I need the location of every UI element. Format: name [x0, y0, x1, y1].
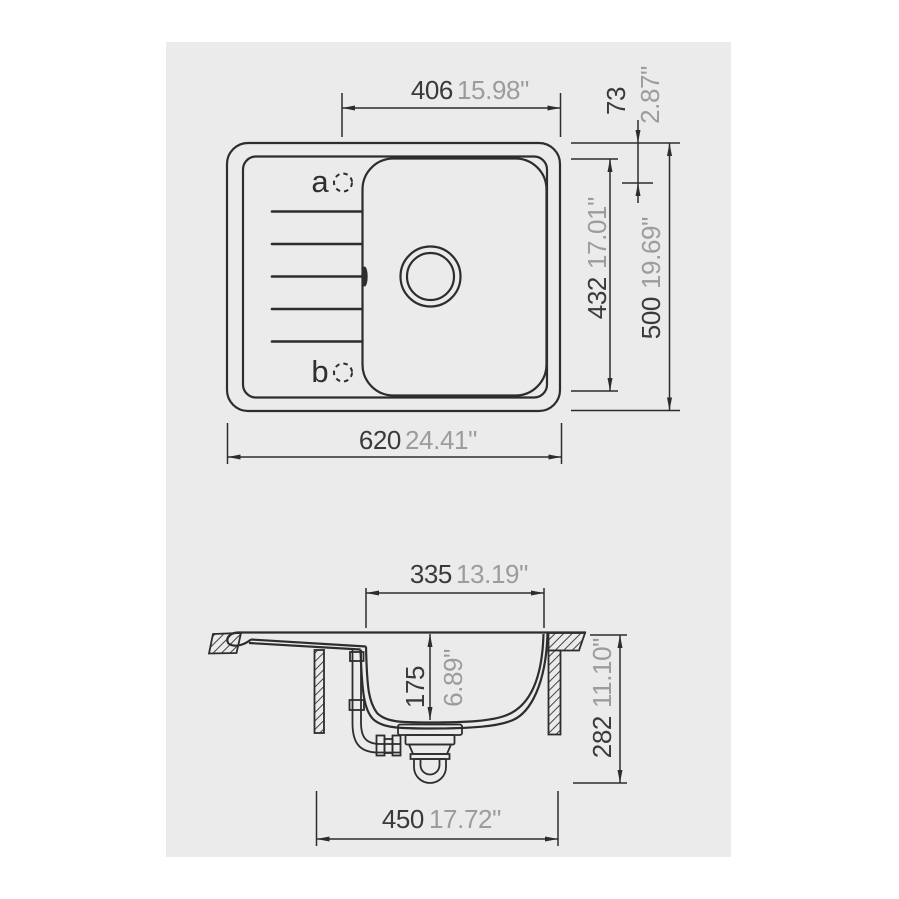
dim-overall-height-inch: 11.10"	[587, 638, 617, 708]
dim-overall-width-metric: 620	[359, 425, 401, 455]
dim-bowl-width-metric: 406	[411, 75, 453, 105]
cabinet-wall-hatch-right	[549, 651, 561, 735]
dim-inner-length-inch: 17.01"	[582, 197, 612, 269]
tap-hole-b-label: b	[311, 354, 328, 389]
drawing-page: a b 406 15.98" 73 2.87"	[0, 0, 899, 899]
dim-bowl-width-inch: 15.98"	[457, 75, 529, 105]
counter-hatch-right	[549, 633, 586, 651]
dim-overall-length-metric: 500	[636, 297, 666, 339]
dim-top-offset-inch: 2.87"	[635, 66, 665, 124]
overflow-notch	[361, 267, 367, 287]
dim-bowl-depth-metric: 175	[400, 666, 430, 708]
cabinet-wall-hatch-left	[315, 650, 325, 733]
dim-overall-height-metric: 282	[587, 716, 617, 758]
tap-hole-a-label: a	[311, 164, 329, 199]
dim-overall-length-inch: 19.69"	[636, 217, 666, 289]
sink-dimension-drawing: a b 406 15.98" 73 2.87"	[0, 0, 899, 899]
dim-cabinet-width-metric: 450	[382, 804, 424, 834]
dim-bowl-depth-inch: 6.89"	[438, 649, 468, 707]
dim-overall-width-inch: 24.41"	[405, 425, 477, 455]
dim-top-offset-metric: 73	[601, 87, 631, 115]
dim-inner-length-metric: 432	[582, 277, 612, 319]
dim-bowl-top-width-metric: 335	[410, 559, 452, 589]
dim-cabinet-width-inch: 17.72"	[429, 804, 501, 834]
counter-hatch-left	[209, 633, 241, 654]
dim-bowl-top-width-inch: 13.19"	[456, 559, 528, 589]
